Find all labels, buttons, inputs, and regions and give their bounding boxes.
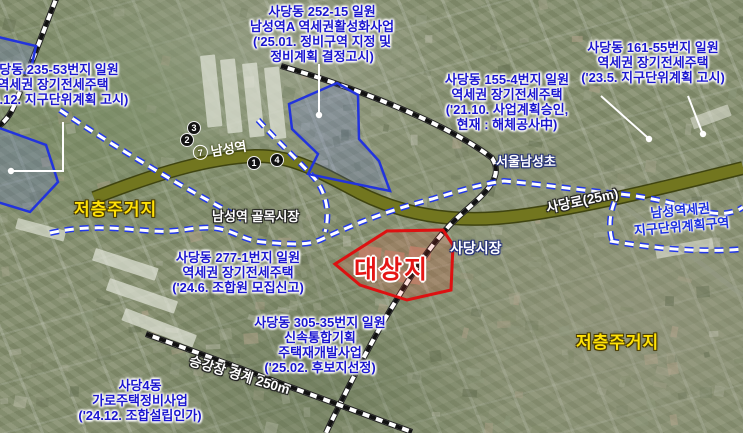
info-line: 역세권 장기전세주택 (563, 55, 743, 70)
info-line: 사당동 155-4번지 일원 (426, 72, 588, 87)
station-exit-1: 1 (247, 156, 261, 170)
school-label: 서울남성초 (496, 151, 556, 170)
subway-line7-icon: 7 (192, 144, 209, 161)
info-line: 정비계획 결정고시) (230, 49, 414, 64)
info-line: 역세권 장기전세주택 (426, 87, 588, 102)
info-line: 역세권 장기전세주택 (0, 77, 134, 92)
station-exit-2: 2 (180, 133, 194, 147)
info-line: 사당동 277-1번지 일원 (150, 250, 326, 265)
alley-market-label: 남성역 골목시장 (212, 206, 299, 225)
info-line: 사당4동 (58, 378, 222, 393)
info-line: 사당동 235-53번지 일원 (0, 62, 134, 77)
info-line: 가로주택정비사업 (58, 393, 222, 408)
info-box-252-15: 사당동 252-15 일원 남성역A 역세권활성화사업 ('25.01. 정비구… (230, 4, 414, 64)
info-line: 역세권 장기전세주택 (150, 265, 326, 280)
info-line: ('24.12. 지구단위계획 고시) (0, 92, 134, 107)
info-box-sadang4: 사당4동 가로주택정비사업 ('24.12. 조합설립인가) (58, 378, 222, 423)
info-line: 현재 : 해체공사中) (426, 117, 588, 132)
info-line: ('24.12. 조합설립인가) (58, 408, 222, 423)
low-rise-area-label-east: 저층주거지 (576, 328, 659, 353)
info-line: ('24.6. 조합원 모집신고) (150, 280, 326, 295)
info-line: 사당동 161-55번지 일원 (563, 40, 743, 55)
info-box-155-4: 사당동 155-4번지 일원 역세권 장기전세주택 ('21.10. 사업계획승… (426, 72, 588, 132)
info-box-305-35: 사당동 305-35번지 일원 신속통합기획 주택재개발사업 ('25.02. … (232, 315, 408, 375)
sadang-market-label: 사당시장 (450, 238, 502, 258)
info-box-277-1: 사당동 277-1번지 일원 역세권 장기전세주택 ('24.6. 조합원 모집… (150, 250, 326, 295)
info-line: 남성역A 역세권활성화사업 (230, 19, 414, 34)
info-line: 사당동 305-35번지 일원 (232, 315, 408, 330)
station-exit-4: 4 (270, 153, 284, 167)
info-box-235-53: 사당동 235-53번지 일원 역세권 장기전세주택 ('24.12. 지구단위… (0, 62, 134, 107)
info-line: ('23.5. 지구단위계획 고시) (563, 70, 743, 85)
info-line: ('21.10. 사업계획승인, (426, 102, 588, 117)
info-line: 주택재개발사업 (232, 345, 408, 360)
info-box-161-55: 사당동 161-55번지 일원 역세권 장기전세주택 ('23.5. 지구단위계… (563, 40, 743, 85)
low-rise-area-label-west: 저층주거지 (74, 195, 157, 220)
aerial-map: 사당동 235-53번지 일원 역세권 장기전세주택 ('24.12. 지구단위… (0, 0, 743, 433)
target-site-label: 대상지 (354, 250, 429, 286)
info-line: ('25.01. 정비구역 지정 및 (230, 34, 414, 49)
info-line: 신속통합기획 (232, 330, 408, 345)
info-line: 사당동 252-15 일원 (230, 4, 414, 19)
